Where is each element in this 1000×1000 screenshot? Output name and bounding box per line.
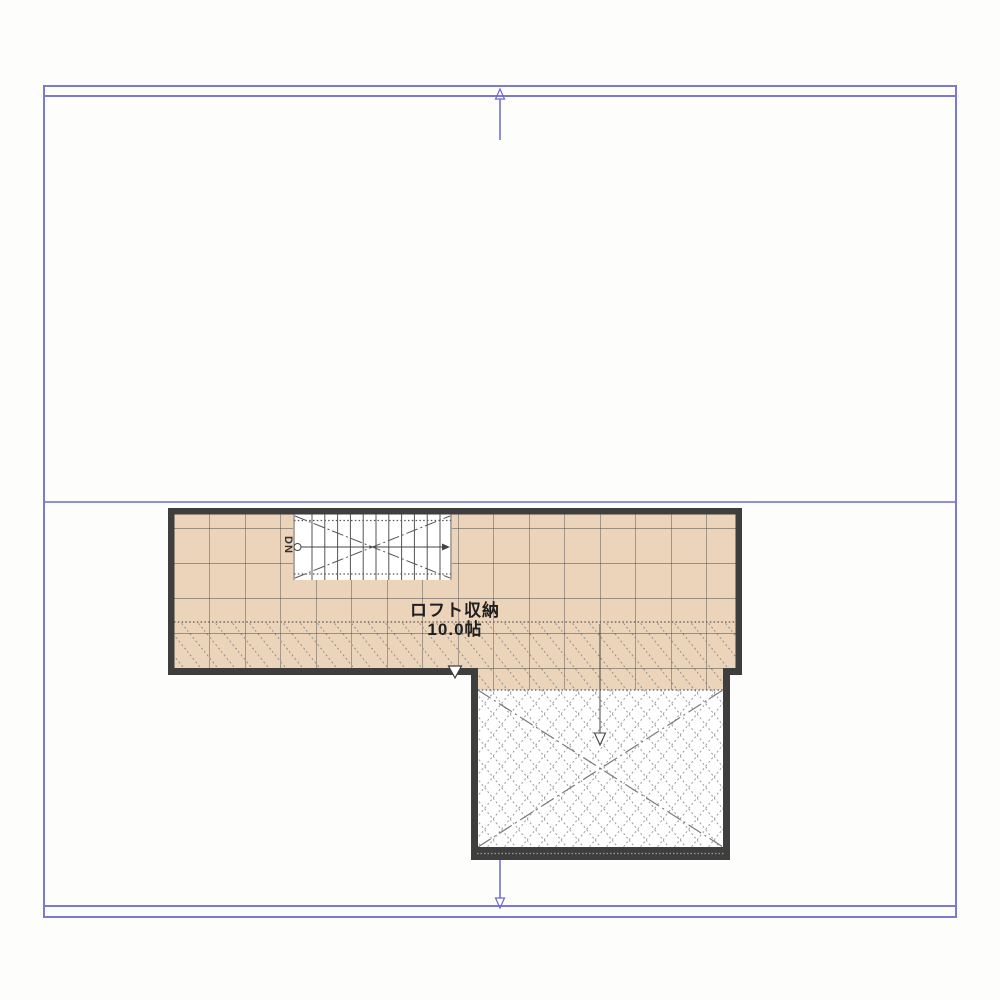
stair-dn-label: DN	[281, 527, 295, 563]
bottom-axis-arrow	[496, 860, 505, 908]
top-axis-arrow	[496, 89, 505, 140]
room-name: ロフト収納	[385, 601, 525, 620]
stair-symbol	[293, 514, 452, 580]
floor-plan	[0, 0, 1000, 1000]
wall-left	[168, 508, 175, 675]
room-label: ロフト収納 10.0帖	[385, 601, 525, 639]
stair-start-circle	[294, 544, 301, 551]
wall-top	[168, 508, 742, 515]
wall-bottom-left-section	[168, 668, 478, 675]
wall-void-right	[723, 668, 730, 860]
drawing-canvas: ロフト収納 10.0帖 DN	[0, 0, 1000, 1000]
wall-right	[736, 508, 743, 675]
wall-void-left	[471, 668, 478, 860]
room-area: 10.0帖	[385, 620, 525, 639]
